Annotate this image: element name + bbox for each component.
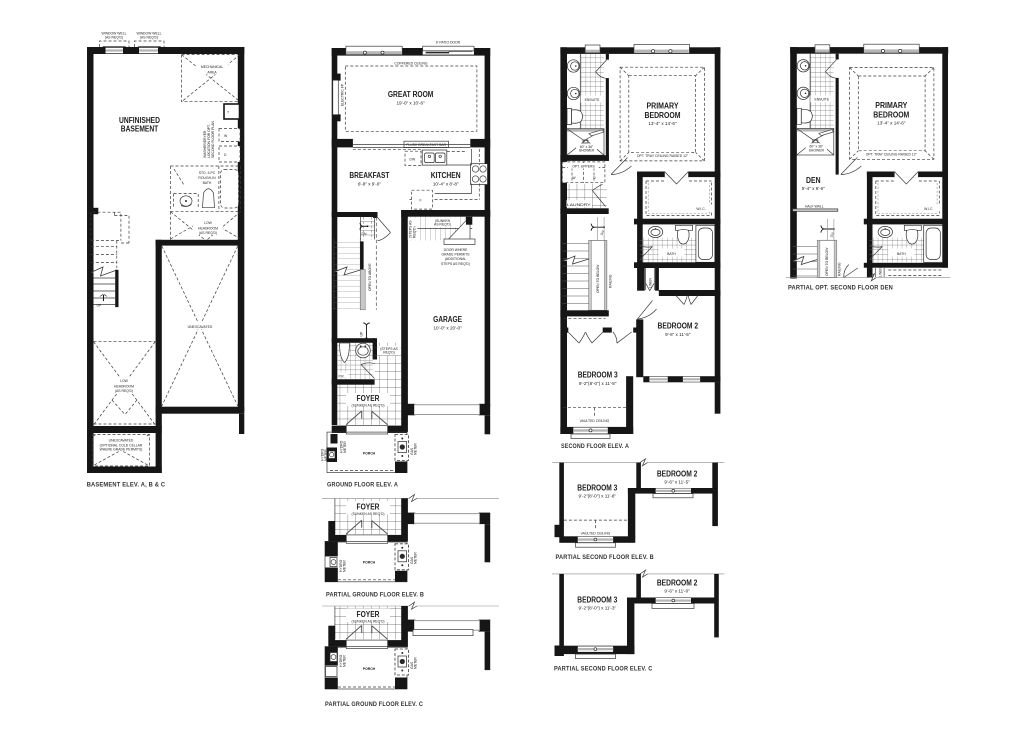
svg-text:MECHANICAL: MECHANICAL bbox=[201, 65, 223, 69]
svg-text:BATH: BATH bbox=[897, 252, 906, 256]
svg-text:LAUNDRY: LAUNDRY bbox=[567, 203, 592, 207]
svg-text:BEDROOM 2: BEDROOM 2 bbox=[658, 322, 699, 331]
svg-text:BEDROOM: BEDROOM bbox=[645, 111, 681, 120]
svg-text:BEDROOM 3: BEDROOM 3 bbox=[578, 371, 618, 380]
svg-text:BEDROOM: BEDROOM bbox=[873, 111, 909, 120]
svg-text:PRIMARY: PRIMARY bbox=[875, 101, 908, 110]
svg-text:VAULTED CEILING: VAULTED CEILING bbox=[581, 532, 611, 536]
svg-text:W.I.C.: W.I.C. bbox=[696, 207, 705, 211]
svg-text:PORCH: PORCH bbox=[363, 561, 376, 565]
svg-text:OPEN TO ABOVE: OPEN TO ABOVE bbox=[368, 263, 372, 291]
svg-text:9'-6" x 11'-5": 9'-6" x 11'-5" bbox=[665, 332, 691, 337]
svg-text:9'-6" x 11'-5": 9'-6" x 11'-5" bbox=[664, 480, 690, 485]
svg-text:OPEN TO BELOW: OPEN TO BELOW bbox=[825, 247, 829, 276]
svg-text:BEDROOM 3: BEDROOM 3 bbox=[577, 596, 617, 605]
svg-text:PORCH: PORCH bbox=[363, 667, 376, 671]
svg-text:9'-2"(8'-0") x 11'-3": 9'-2"(8'-0") x 11'-3" bbox=[579, 606, 617, 611]
svg-text:GROUND FLOOR ELEV. A: GROUND FLOOR ELEV. A bbox=[327, 482, 398, 489]
svg-text:DW: DW bbox=[410, 158, 416, 162]
svg-text:ROUGH-IN: ROUGH-IN bbox=[198, 176, 216, 180]
svg-text:PARTIAL GROUND FLOOR ELEV. B: PARTIAL GROUND FLOOR ELEV. B bbox=[326, 592, 424, 599]
svg-text:METER: METER bbox=[343, 441, 347, 453]
svg-text:OPT. UPPERS: OPT. UPPERS bbox=[572, 164, 595, 168]
svg-text:PORCH: PORCH bbox=[363, 452, 376, 456]
svg-text:HALF WALL: HALF WALL bbox=[805, 204, 824, 208]
svg-text:LINEN: LINEN bbox=[878, 266, 882, 277]
svg-text:REQ'D): REQ'D) bbox=[412, 226, 416, 238]
svg-text:(SUNKEN AS REQ'D): (SUNKEN AS REQ'D) bbox=[351, 620, 384, 624]
svg-text:LOW: LOW bbox=[204, 221, 213, 225]
svg-text:SHOWER: SHOWER bbox=[579, 149, 595, 153]
svg-text:6' PATIO DOOR: 6' PATIO DOOR bbox=[436, 41, 461, 45]
svg-text:AS REQ'D): AS REQ'D) bbox=[434, 223, 451, 227]
svg-text:METER: METER bbox=[414, 443, 418, 455]
svg-text:T: T bbox=[227, 111, 229, 115]
svg-text:BASEMENT: BASEMENT bbox=[121, 125, 159, 134]
svg-text:5'-4" x 6'-6": 5'-4" x 6'-6" bbox=[802, 186, 826, 191]
svg-text:AREA: AREA bbox=[207, 70, 217, 74]
svg-text:GARAGE: GARAGE bbox=[433, 315, 463, 324]
svg-text:SHOWER: SHOWER bbox=[809, 148, 825, 152]
svg-text:BREAKFAST: BREAKFAST bbox=[349, 171, 389, 180]
svg-text:METER: METER bbox=[343, 655, 347, 667]
svg-text:BATH: BATH bbox=[203, 181, 212, 185]
svg-text:FOYER: FOYER bbox=[357, 610, 380, 619]
svg-text:(AS REQ'D): (AS REQ'D) bbox=[105, 36, 123, 40]
svg-text:DOOR WHERE: DOOR WHERE bbox=[444, 248, 468, 252]
svg-text:10'-4" x 8'-8": 10'-4" x 8'-8" bbox=[433, 182, 459, 187]
svg-text:W.I.C.: W.I.C. bbox=[924, 207, 933, 211]
svg-text:9'-6" x 11'-0": 9'-6" x 11'-0" bbox=[664, 589, 690, 594]
svg-text:METER: METER bbox=[414, 657, 418, 669]
svg-text:FOYER: FOYER bbox=[357, 503, 380, 512]
svg-text:ELECTRIC FP: ELECTRIC FP bbox=[341, 83, 345, 106]
svg-text:METER: METER bbox=[414, 552, 418, 564]
svg-text:BEDROOM 3: BEDROOM 3 bbox=[577, 484, 617, 493]
svg-text:OPT. TRAY CEILING RAISED 12": OPT. TRAY CEILING RAISED 12" bbox=[866, 152, 918, 156]
svg-text:PRIMARY: PRIMARY bbox=[647, 102, 680, 111]
svg-text:VAULTED CEILING: VAULTED CEILING bbox=[580, 419, 610, 423]
svg-text:COFFERED CEILING: COFFERED CEILING bbox=[394, 61, 428, 65]
svg-text:LINEN: LINEN bbox=[649, 277, 653, 288]
svg-text:FLUSH BREAKFAST BAR: FLUSH BREAKFAST BAR bbox=[406, 143, 446, 147]
svg-text:(ADDITIONAL: (ADDITIONAL bbox=[445, 257, 467, 261]
svg-text:BASEMENT ELEV. A, B & C: BASEMENT ELEV. A, B & C bbox=[87, 482, 166, 489]
svg-text:STEPS AS REQ'D): STEPS AS REQ'D) bbox=[441, 262, 470, 266]
svg-text:LOW: LOW bbox=[120, 379, 129, 383]
svg-text:KITCHEN: KITCHEN bbox=[431, 171, 461, 180]
svg-text:UNEXCAVATED: UNEXCAVATED bbox=[188, 325, 213, 329]
svg-text:ENSUITE: ENSUITE bbox=[585, 98, 600, 102]
svg-text:(AS REQ'D): (AS REQ'D) bbox=[115, 389, 133, 393]
svg-text:HEADROOM: HEADROOM bbox=[114, 385, 134, 389]
svg-text:METER: METER bbox=[343, 560, 347, 572]
svg-text:WHERE GRADE PERMITS): WHERE GRADE PERMITS) bbox=[100, 447, 143, 451]
svg-text:13'-4" x 14'-6": 13'-4" x 14'-6" bbox=[877, 121, 906, 126]
svg-text:GREAT ROOM: GREAT ROOM bbox=[388, 90, 434, 99]
svg-text:UNEXCAVATED: UNEXCAVATED bbox=[109, 439, 134, 443]
svg-text:DEN: DEN bbox=[806, 176, 821, 185]
svg-text:P.R.: P.R. bbox=[339, 374, 345, 378]
svg-text:OPT. TRAY CEILING RAISED 12": OPT. TRAY CEILING RAISED 12" bbox=[637, 154, 689, 158]
svg-text:PARTIAL GROUND FLOOR ELEV. C: PARTIAL GROUND FLOOR ELEV. C bbox=[325, 701, 423, 708]
svg-text:GRADE PERMITS: GRADE PERMITS bbox=[441, 253, 470, 257]
svg-text:(AS REQ'D): (AS REQ'D) bbox=[199, 231, 217, 235]
svg-text:SECOND FLOOR ELEV. A: SECOND FLOOR ELEV. A bbox=[561, 443, 629, 450]
svg-text:(SUNKEN AS REQ'D): (SUNKEN AS REQ'D) bbox=[351, 512, 384, 516]
svg-text:6'-8" x 9'-0": 6'-8" x 9'-0" bbox=[358, 182, 382, 187]
svg-text:BEDROOM 2: BEDROOM 2 bbox=[657, 579, 698, 588]
svg-text:PARTIAL OPT. SECOND FLOOR DEN: PARTIAL OPT. SECOND FLOOR DEN bbox=[788, 285, 893, 292]
svg-text:ENSUITE: ENSUITE bbox=[814, 98, 829, 102]
svg-text:HEADROOM: HEADROOM bbox=[198, 227, 218, 231]
svg-text:(AS REQ'D): (AS REQ'D) bbox=[140, 36, 158, 40]
svg-text:10'-0" x 20'-0": 10'-0" x 20'-0" bbox=[433, 326, 462, 331]
svg-text:(SUNKEN AS REQ'D): (SUNKEN AS REQ'D) bbox=[351, 404, 384, 408]
svg-text:RAILING: RAILING bbox=[609, 274, 613, 288]
svg-text:METER: METER bbox=[324, 449, 328, 461]
svg-text:PARTIAL SECOND FLOOR ELEV. B: PARTIAL SECOND FLOOR ELEV. B bbox=[556, 554, 654, 561]
svg-text:DN: DN bbox=[362, 232, 367, 236]
svg-text:19'-0" x 10'-6": 19'-0" x 10'-6" bbox=[396, 101, 425, 106]
svg-text:PARTIAL SECOND FLOOR ELEV. C: PARTIAL SECOND FLOOR ELEV. C bbox=[554, 666, 653, 673]
svg-text:RAILING: RAILING bbox=[837, 262, 841, 276]
svg-text:FOYER: FOYER bbox=[357, 394, 380, 403]
svg-text:UP: UP bbox=[97, 304, 102, 308]
svg-text:BATH: BATH bbox=[667, 252, 676, 256]
svg-text:9'-2"(8'-0") x 11'-8": 9'-2"(8'-0") x 11'-8" bbox=[579, 381, 617, 386]
svg-text:SECOND FLOOR PLAN: SECOND FLOOR PLAN bbox=[211, 121, 215, 158]
svg-text:BEDROOM 2: BEDROOM 2 bbox=[657, 470, 698, 479]
svg-text:OPEN TO BELOW: OPEN TO BELOW bbox=[596, 264, 600, 293]
svg-text:9'-2"(8'-0") x 11'-8": 9'-2"(8'-0") x 11'-8" bbox=[579, 494, 617, 499]
svg-text:UP: UP bbox=[360, 331, 364, 336]
svg-text:REQ'D): REQ'D) bbox=[383, 351, 395, 355]
svg-text:F: F bbox=[420, 199, 422, 203]
svg-text:13'-4" x 14'-6": 13'-4" x 14'-6" bbox=[648, 121, 677, 126]
svg-text:STD. 3-PC: STD. 3-PC bbox=[199, 171, 216, 175]
